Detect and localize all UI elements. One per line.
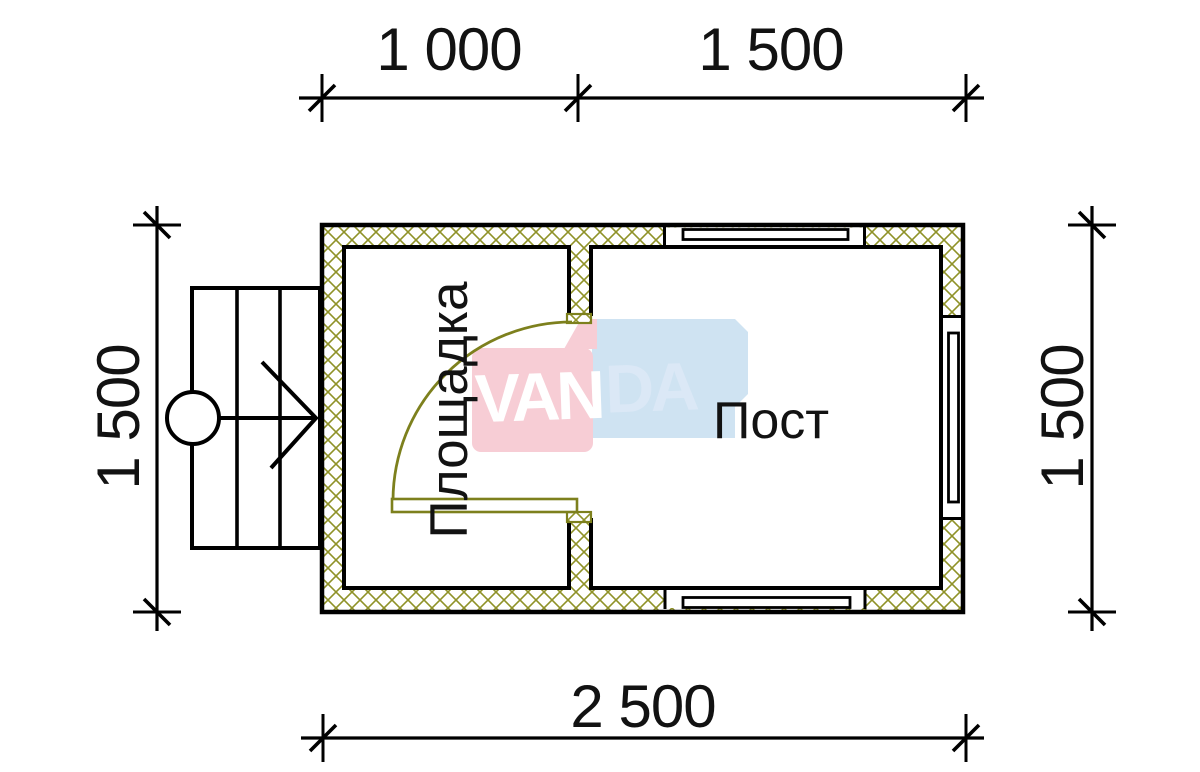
dim-text-right: 1 500 (1029, 344, 1096, 489)
window-right-sash (949, 333, 959, 502)
dim-text-bottom: 2 500 (570, 673, 715, 740)
floor-plan-drawing: VAN DA (0, 0, 1200, 772)
room-label-post: Пост (713, 392, 829, 450)
floor-plan-canvas: VAN DA (0, 0, 1200, 772)
entry-axis-circle (167, 392, 219, 444)
window-right (942, 316, 962, 519)
door-frame-block-bottom (567, 512, 591, 522)
logo-text-van: VAN (474, 357, 603, 437)
window-bottom (664, 589, 866, 609)
window-top-sash (683, 230, 848, 240)
logo-text-da: DA (604, 348, 700, 427)
entry-steps (167, 288, 320, 548)
dim-text-top-right: 1 500 (698, 16, 843, 83)
window-bottom-sash (683, 598, 850, 608)
room-label-porch: Площадка (420, 281, 479, 538)
window-top (664, 227, 865, 246)
dim-text-left: 1 500 (85, 344, 152, 489)
dim-text-top-left: 1 000 (376, 16, 521, 83)
